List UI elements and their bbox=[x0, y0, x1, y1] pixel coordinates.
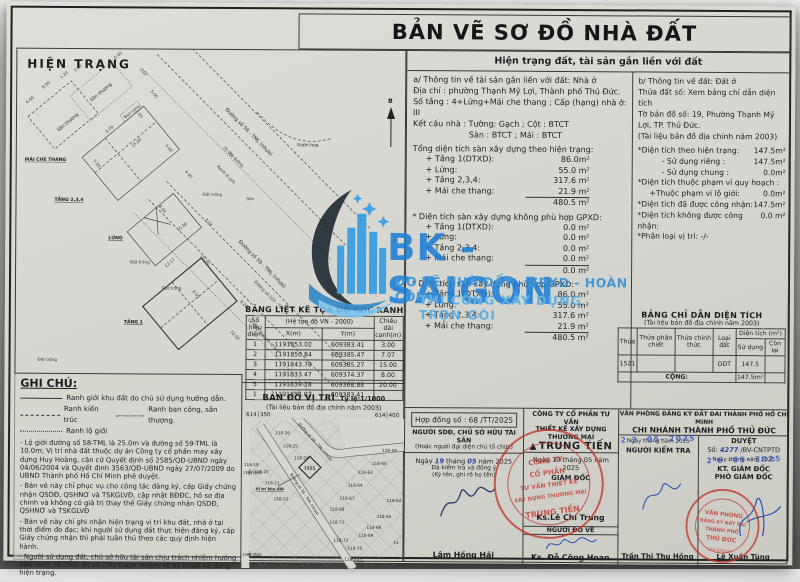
company-title2: THIẾT KẾ XÂY DỰNG THƯƠNG MẠI bbox=[524, 426, 618, 442]
note-paragraph: - Lộ giới đường số 58-TML là 25.0m và đư… bbox=[14, 437, 241, 482]
checker-signature bbox=[637, 475, 687, 517]
svg-text:Sân thượng: Sân thượng bbox=[55, 111, 80, 133]
page-title: BẢN VẼ SƠ ĐỒ NHÀ ĐẤT bbox=[299, 14, 789, 51]
lot-label: 118-68 bbox=[330, 507, 345, 512]
map-scale: Tỷ lệ:1/1000 bbox=[340, 395, 385, 403]
lot-label: 118-73 bbox=[344, 557, 359, 562]
approver-date-stamp: 2 6 -05- 2025 bbox=[698, 453, 789, 465]
label-tang-1: TẦNG 1 bbox=[124, 316, 143, 325]
dimension-label: 0.70 bbox=[104, 124, 115, 134]
document-frame: BẢN VẼ SƠ ĐỒ NHÀ ĐẤT HIỆN TRẠNG B bbox=[7, 6, 791, 562]
land-rows: *Diện tích theo hiện trạng:147.5m²- Sử d… bbox=[637, 145, 786, 243]
svg-text:Đất trống: Đất trống bbox=[130, 259, 150, 264]
lot-label: 15 bbox=[393, 540, 399, 545]
dimension-label: 8.00 bbox=[191, 289, 201, 299]
lot-label: 118-67 bbox=[340, 496, 355, 501]
approver-title: DUYỆT bbox=[699, 436, 790, 445]
map-subtitle: (Tài liệu bản đồ địa chính năm 2003) bbox=[242, 404, 405, 412]
site-label: Vị trí khu đất bbox=[256, 486, 284, 491]
area-col-sudung: Sử dụng bbox=[736, 339, 765, 356]
checker-cell: Ngày tháng năm 2025 2 2 -05- 2025 NGƯỜI … bbox=[618, 435, 698, 565]
dimension-label: 6.60 bbox=[25, 95, 36, 105]
area-table: Thửa Thửa phân chiết Thửa chính thức Loạ… bbox=[617, 327, 785, 383]
legend-dashed-line bbox=[20, 414, 60, 415]
dimension-label: 7.00 bbox=[134, 109, 144, 119]
asset-total-row: 480.5 m² bbox=[412, 331, 627, 344]
lot-label: 118-66 bbox=[366, 525, 381, 530]
scanned-document: BẢN VẼ SƠ ĐỒ NHÀ ĐẤT HIỆN TRẠNG B bbox=[3, 2, 795, 566]
owner-signature bbox=[435, 480, 499, 524]
area-table-subtitle: (Tài liệu bản đồ địa chính năm 2003) bbox=[616, 319, 788, 327]
lot-label: 118-72 bbox=[333, 538, 348, 543]
label-san: Sân bbox=[247, 196, 255, 201]
dimension-label: 8.00 bbox=[41, 80, 52, 90]
plan-tang-1 bbox=[143, 258, 237, 350]
svg-text:Sân thượng: Sân thượng bbox=[88, 81, 113, 103]
label-dat-trong: Đất trống bbox=[203, 192, 223, 197]
lot-label: 118-25 bbox=[283, 443, 298, 448]
info-panel: Hiện trạng đất, tài sản gắn liền với đất… bbox=[403, 50, 790, 564]
coord-col-point: Số hiệu điểm bbox=[246, 316, 265, 340]
map-coord-left2: 1191│800 bbox=[242, 552, 262, 557]
checker-role: NGƯỜI KIỂM TRA bbox=[619, 446, 698, 454]
surveyor-box: NGƯỜI ĐO VẼ Ks. Đỗ Công Hoan bbox=[523, 525, 617, 564]
note-paragraph: - Bản vẽ này chỉ phục vụ cho công tác đă… bbox=[14, 480, 241, 517]
legend-label: Ranh kiến trúc bbox=[64, 404, 112, 426]
area-table-block: BẢNG CHỈ DẪN DIỆN TÍCH (Tài liệu bản đồ … bbox=[615, 310, 787, 383]
area-col-loaidat: Loại đất bbox=[713, 328, 736, 355]
company-brand: ▲TRUNG TIẾN bbox=[524, 441, 618, 453]
lot-label: 118-70 bbox=[347, 546, 362, 551]
land-row: *Diện tích theo hiện trạng:147.5m² bbox=[638, 145, 786, 157]
legend-dotted-line bbox=[116, 415, 144, 416]
asset-sections: Tổng diện tích sàn xây dựng theo hiện tr… bbox=[412, 143, 628, 344]
dimension-label: 3.67 bbox=[139, 67, 149, 77]
checker-date: Ngày tháng năm 2025 2 2 -05- 2025 bbox=[619, 438, 698, 444]
dimension-label: 20.00 bbox=[199, 254, 211, 266]
area-col-chinhthuc: Thửa chính thức bbox=[675, 328, 713, 355]
lot-label: 118-21 bbox=[265, 480, 280, 485]
company-logo-icon: ▲ bbox=[529, 442, 536, 452]
lot-label: 118-59 bbox=[382, 448, 397, 453]
asset-floors: Số tầng : 4+Lửng+Mái che thang ; Cấp (hạ… bbox=[413, 96, 628, 119]
coord-col-y: Y(m) bbox=[322, 328, 374, 340]
map-title: BẢN ĐỒ VỊ TRÍ bbox=[262, 393, 335, 403]
office-cell: VĂN PHÒNG ĐĂNG KÝ ĐẤT ĐAI THÀNH PHỐ HỒ C… bbox=[618, 409, 789, 565]
asset-total-row: 0.0 m² bbox=[412, 264, 627, 277]
area-row: 1521 ODT 147.5 bbox=[618, 355, 785, 373]
company-cell: CÔNG TY CỔ PHẦN TƯ VẤN THIẾT KẾ XÂY DỰNG… bbox=[523, 409, 619, 565]
owner-subtitle: (Hoặc người đại diện chủ tổ chức) bbox=[405, 444, 523, 452]
lot-label: 118-60 bbox=[372, 461, 387, 466]
location-map: 1521 Vị trí khu đất Đường số 58 - TML (n… bbox=[241, 418, 405, 569]
signoff-block: Hợp đồng số : 68 /TT/2025 NGƯỜI SDĐ, CHỦ… bbox=[404, 407, 789, 565]
asset-total-row: 480.5 m² bbox=[412, 196, 627, 209]
label-street-59: Đường số 59 - TML (nhựa) bbox=[237, 239, 288, 290]
company-director-name: Ks.Lê Chí Trung bbox=[523, 512, 617, 522]
checker-name: Trần Thị Thu Hồng bbox=[618, 552, 697, 560]
asset-column: a/ Thông tin về tài sản gắn liền với đất… bbox=[405, 71, 633, 408]
handwritten-day: 19 bbox=[435, 457, 444, 465]
dimension-label: 10.00 bbox=[229, 329, 241, 341]
dimension-label: 5.00 bbox=[149, 89, 159, 99]
asset-structure1: Kết cấu nhà : Tường: Gạch ; Cột : BTCT bbox=[413, 118, 628, 130]
label-lung: LỬNG bbox=[108, 233, 123, 241]
dimension-label: 15.00 bbox=[176, 221, 189, 233]
svg-text:Ranh lộ giới: Ranh lộ giới bbox=[216, 164, 236, 185]
dimension-label: 3.00 bbox=[164, 143, 174, 153]
dimension-label: 12.17 bbox=[164, 257, 177, 269]
area-col-dientich: Diện tích (m²) bbox=[736, 329, 785, 339]
legend-solid-line bbox=[20, 398, 62, 399]
contract-number: Hợp đồng số : 68 /TT/2025 bbox=[411, 412, 517, 428]
plan-san-thuong-top: Sân thượng bbox=[70, 62, 132, 121]
area-col-thua: Thửa bbox=[618, 328, 637, 355]
dimension-label: 5.60 bbox=[113, 50, 124, 60]
lot-label: 118-64 bbox=[348, 483, 363, 488]
owner-date: Ngày 19 tháng 05 năm 2025 bbox=[405, 457, 523, 466]
lot-label: 118-20 bbox=[254, 469, 269, 474]
svg-text:Đất trống: Đất trống bbox=[162, 286, 182, 291]
notes-box: GHI CHÚ: Ranh giới khu đất do chủ sử dụn… bbox=[13, 373, 242, 562]
lot-label: 118-62 bbox=[387, 498, 402, 503]
land-doc: (Tài liệu bản đồ địa chính năm 2003) bbox=[638, 130, 786, 142]
svg-text:1521: 1521 bbox=[304, 465, 316, 470]
info-panel-header: Hiện trạng đất, tài sản gắn liền với đất bbox=[407, 51, 789, 73]
lot-label: 118-65 bbox=[377, 514, 392, 519]
owner-name: Lâm Hồng Hải bbox=[404, 550, 522, 560]
approver-name: Lê Xuân Tùng bbox=[698, 553, 789, 562]
company-role: GIÁM ĐỐC bbox=[524, 474, 618, 483]
coord-col-x: X(m) bbox=[265, 328, 322, 340]
dimension-label: 1.20 bbox=[59, 70, 70, 80]
handwritten-month: 05 bbox=[467, 457, 476, 465]
area-total-row: CỘNG: 147.5m² bbox=[618, 372, 785, 383]
lot-label: 118-26 bbox=[275, 430, 290, 435]
note-paragraph: - Người sử dụng đất, chủ sở hữu tài sản … bbox=[13, 551, 240, 579]
plan-tang-234: Ban công bbox=[77, 100, 179, 200]
surveyor-name: Ks. Đỗ Công Hoan bbox=[523, 553, 617, 563]
surveyor-signature bbox=[540, 535, 600, 553]
lot-label: 118-63 bbox=[358, 470, 373, 475]
dimension-label: 25.0m bbox=[222, 145, 235, 158]
surveyor-title: NGƯỜI ĐO VẼ bbox=[523, 526, 617, 535]
drawing-panel: HIỆN TRẠNG B Sân thượng bbox=[13, 48, 406, 562]
svg-text:Đất trống: Đất trống bbox=[38, 357, 58, 362]
lot-label: 118-24 bbox=[294, 455, 309, 460]
location-map-block: BẢN ĐỒ VỊ TRÍ Tỷ lệ:1/1000 (Tài liệu bản… bbox=[241, 382, 405, 563]
dimension-label: 8.00 bbox=[158, 204, 168, 214]
area-col-conlai: Còn lại bbox=[765, 339, 785, 356]
title-box: BẢN VẼ SƠ ĐỒ NHÀ ĐẤT bbox=[298, 13, 790, 52]
legend-label: Ranh lộ giới bbox=[66, 426, 107, 437]
dimension-label: 3.60 bbox=[73, 63, 84, 73]
label-vuon-hoa: Vườn hoa bbox=[297, 141, 319, 148]
dimension-label: 7.07 bbox=[204, 217, 214, 227]
legend-label: Ranh ban công, sân thượng. bbox=[148, 404, 241, 427]
approver-role2: PHÓ GIÁM ĐỐC bbox=[698, 472, 789, 481]
svg-text:B: B bbox=[388, 98, 393, 105]
legend-line-2: Ranh kiến trúc Ranh ban công, sân thượng… bbox=[14, 404, 241, 427]
owner-line2: (Ký tên, ghi rõ họ tên) bbox=[405, 472, 523, 480]
legend-dotted-line bbox=[20, 431, 62, 432]
land-sheet: Tờ bản đồ số: 19, Phường Thạnh Mỹ Lợi, T… bbox=[638, 108, 786, 131]
lot-label: 118-71 bbox=[330, 520, 345, 525]
label-mai-che-thang: MÁI CHE THANG bbox=[25, 156, 67, 163]
owner-title: NGƯỜI SDĐ, CHỦ SỞ HỮU TÀI SẢN bbox=[405, 429, 523, 445]
plan-lung bbox=[127, 193, 201, 265]
land-row: *Phân loại vị trí: -/- bbox=[637, 232, 785, 244]
coord-table-title: BẢNG LIỆT KÊ TỌA ĐỘ GÓC RANH bbox=[243, 305, 406, 315]
notes-title: GHI CHÚ: bbox=[20, 377, 241, 391]
company-title1: CÔNG TY CỔ PHẦN TƯ VẤN bbox=[524, 411, 618, 427]
land-row: *Diện tích không được công nhận:0.0 m² bbox=[637, 210, 785, 232]
dimension-label: 7.50 bbox=[92, 158, 102, 168]
handwritten-number: 4277 bbox=[720, 445, 738, 453]
approver-cell: DUYỆT Số: 4277 /BV-CNTPTD Ngày tháng năm… bbox=[698, 435, 789, 565]
checker-date-stamp: 2 2 -05- 2025 bbox=[619, 433, 698, 444]
land-parcel: Thửa đất số: Xem bảng chỉ dẫn diện tích bbox=[638, 86, 786, 109]
approver-number: Số: 4277 /BV-CNTPTD bbox=[698, 445, 789, 454]
dimension-label: 4.00 bbox=[184, 169, 194, 179]
coord-col-sys: (Hệ tọa độ VN - 2000) bbox=[265, 316, 374, 329]
notes-paragraphs: - Lộ giới đường số 58-TML là 25.0m và đư… bbox=[13, 437, 241, 579]
north-arrow-icon: B bbox=[387, 98, 395, 147]
area-col-phanchiet: Thửa phân chiết bbox=[637, 328, 675, 355]
asset-structure2: Sàn : BTCT ; Mái : BTCT bbox=[413, 129, 628, 141]
lot-label: 118-69 bbox=[358, 533, 373, 538]
note-paragraph: - Bản vẽ này chỉ ghi nhận hiện trạng vị … bbox=[13, 515, 240, 552]
label-tang-234: TẦNG 2,3,4 bbox=[54, 194, 83, 203]
approver-signature bbox=[732, 492, 786, 544]
owner-cell: Hợp đồng số : 68 /TT/2025 NGƯỜI SDĐ, CHỦ… bbox=[404, 408, 524, 564]
coord-col-len: Chiều dài cạnh(m) bbox=[374, 316, 403, 340]
dimension-label: 15.00 bbox=[130, 137, 143, 149]
lot-label: 118-19 bbox=[244, 462, 259, 467]
land-heading: b/ Thông tin về đất: Đất ở bbox=[638, 75, 786, 87]
plan-san-thuong-left: Sân thượng bbox=[28, 81, 98, 149]
approver-date: Ngày tháng năm 2025 2 6 -05- 2025 bbox=[698, 456, 789, 463]
lot-label: 118-22 bbox=[274, 496, 289, 501]
company-date: Ngày 19 tháng 05 năm 2025 bbox=[524, 456, 618, 473]
